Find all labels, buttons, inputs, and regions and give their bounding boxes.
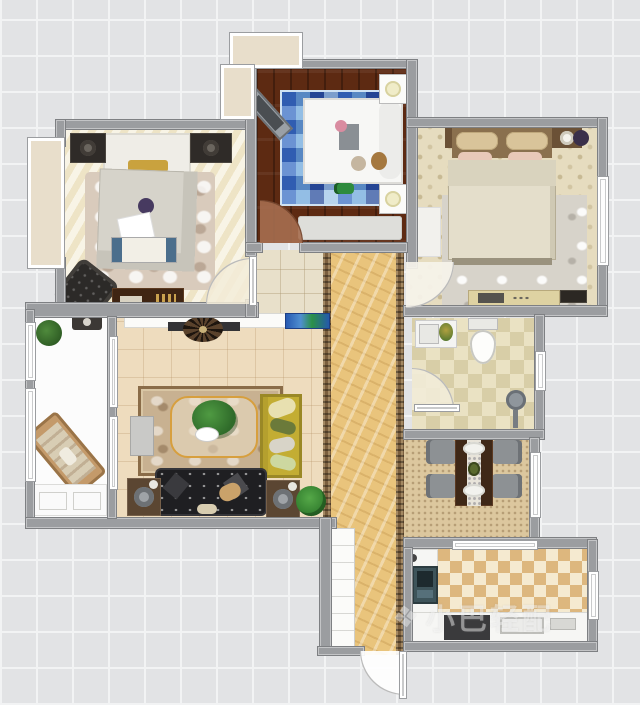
wall <box>26 518 336 528</box>
master-side-rug <box>415 207 441 257</box>
bedroom-left-bench <box>112 238 176 262</box>
wall <box>404 430 544 439</box>
wall <box>404 642 597 651</box>
window-balcony-slider-1 <box>109 336 118 408</box>
dining-table <box>455 436 493 506</box>
window-dining <box>530 452 541 518</box>
kids-room-door-rug <box>298 216 402 240</box>
living-ceiling-lamp <box>183 316 223 342</box>
bathroom-shower-head <box>506 390 526 410</box>
master-bed-footboard <box>452 258 552 265</box>
living-end-table-left <box>127 478 161 516</box>
window-kitchen-pass <box>452 540 538 550</box>
dining-chair-tr <box>492 440 522 464</box>
wall <box>56 120 252 129</box>
window-balcony-1 <box>25 322 36 381</box>
floor-plan-canvas: ❖ 小巴轻配 <box>0 0 640 705</box>
living-vase <box>196 428 218 441</box>
window-master <box>597 176 609 266</box>
dining-chair-br <box>492 474 522 498</box>
watermark-text: 小巴轻配 <box>426 596 554 638</box>
bay-window-kids-left <box>221 65 254 119</box>
wall <box>300 243 407 252</box>
door-arc-entry <box>360 651 404 695</box>
wall <box>246 243 262 252</box>
bathroom-toilet-tank <box>468 318 498 330</box>
dining-chair-tl <box>426 440 456 464</box>
balcony-plant <box>36 320 62 346</box>
living-side-table <box>130 416 154 456</box>
wall <box>404 306 607 316</box>
bay-window-bedroom-left <box>28 138 64 268</box>
balcony-cabinet <box>33 484 107 516</box>
corridor-mosaic-right <box>396 243 404 655</box>
window-kitchen <box>588 571 599 620</box>
window-bathroom <box>535 351 546 391</box>
living-black-sofa <box>155 468 267 516</box>
door-leaf-bathroom <box>414 404 460 412</box>
wall <box>407 118 607 127</box>
window-balcony-slider-2 <box>109 416 118 490</box>
master-duvet <box>448 160 556 260</box>
wall <box>407 60 417 268</box>
master-stool <box>573 130 589 146</box>
living-yellow-sofa <box>260 394 302 478</box>
bedroom-left-nightstand-right <box>190 133 232 163</box>
hallway-floor <box>256 250 323 318</box>
bathroom-vanity <box>415 320 457 348</box>
kids-room-nightstand-top <box>380 75 406 103</box>
kids-room-bed <box>303 98 403 184</box>
kids-room-nightstand-bottom <box>380 185 406 213</box>
window-balcony-2 <box>25 388 36 482</box>
bathroom-shower-stand <box>513 410 518 428</box>
door-leaf-entry <box>399 651 407 699</box>
living-potted-plant <box>296 486 326 516</box>
wall <box>26 303 258 317</box>
living-end-table-right <box>266 480 300 518</box>
dining-chair-bl <box>426 474 456 498</box>
bedroom-left-nightstand-left <box>70 133 106 163</box>
wall <box>318 647 364 655</box>
master-dresser <box>560 290 587 303</box>
living-aquarium <box>285 313 330 329</box>
master-tv-console <box>468 290 560 306</box>
watermark: ❖ 小巴轻配 <box>392 596 554 638</box>
kids-room-toy-car <box>334 183 354 194</box>
wall <box>320 518 331 655</box>
bedroom-left-tray <box>138 198 154 214</box>
watermark-logo-icon: ❖ <box>390 598 424 637</box>
bay-window-kids-top <box>230 33 302 68</box>
door-leaf-bedroom-left <box>249 256 257 306</box>
entry-shoe-cabinet <box>331 528 355 648</box>
